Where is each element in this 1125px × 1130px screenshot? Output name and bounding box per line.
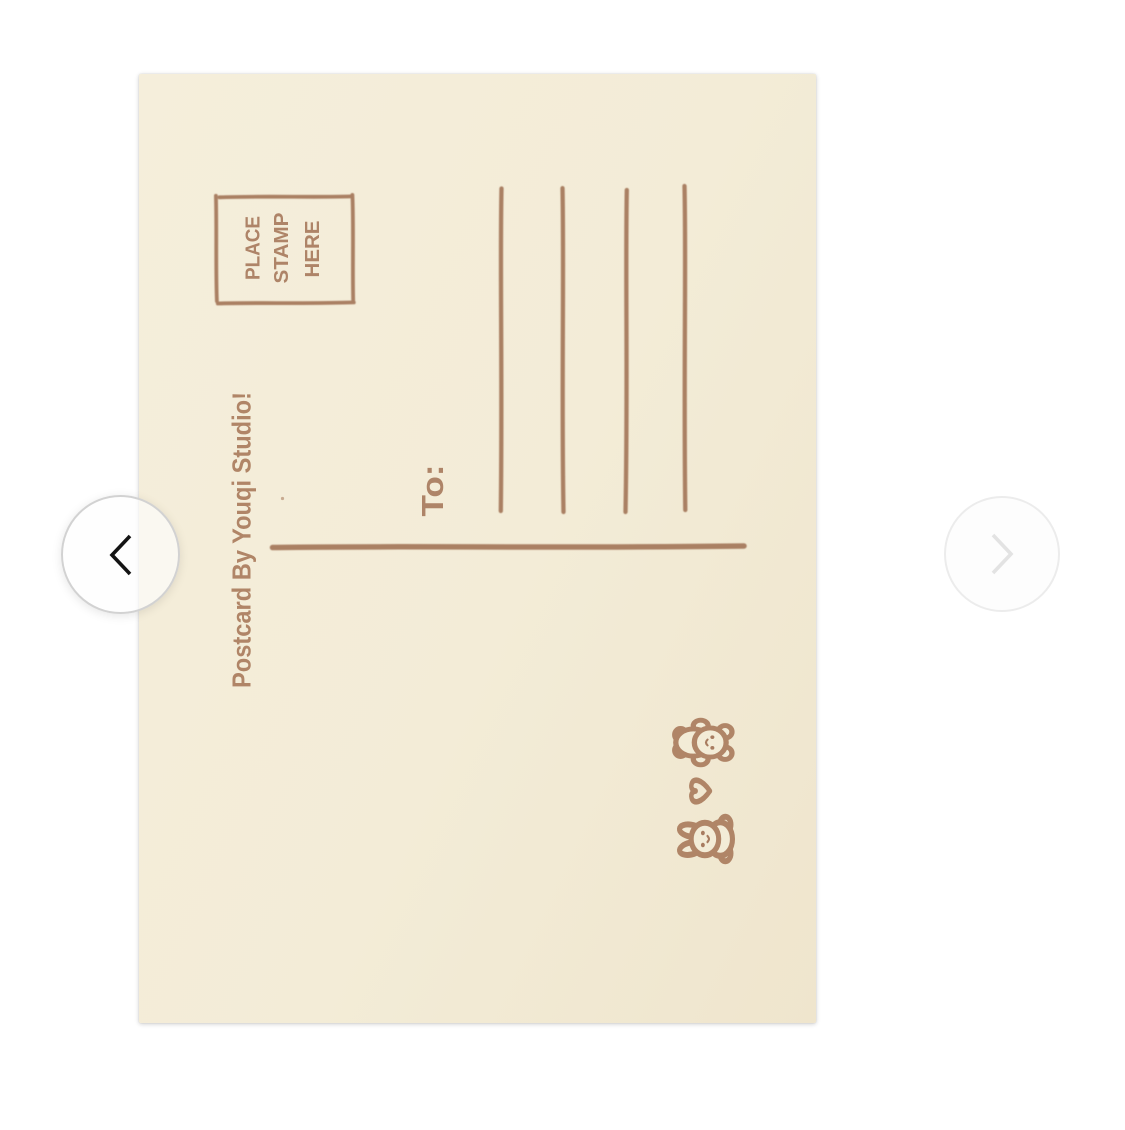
svg-text:STAMP: STAMP (271, 213, 293, 284)
svg-text:To:: To: (415, 465, 450, 517)
svg-text:HERE: HERE (302, 221, 324, 278)
svg-text:PLACE: PLACE (243, 216, 265, 280)
svg-text:Postcard By Youqi Studio!: Postcard By Youqi Studio! (227, 392, 257, 688)
